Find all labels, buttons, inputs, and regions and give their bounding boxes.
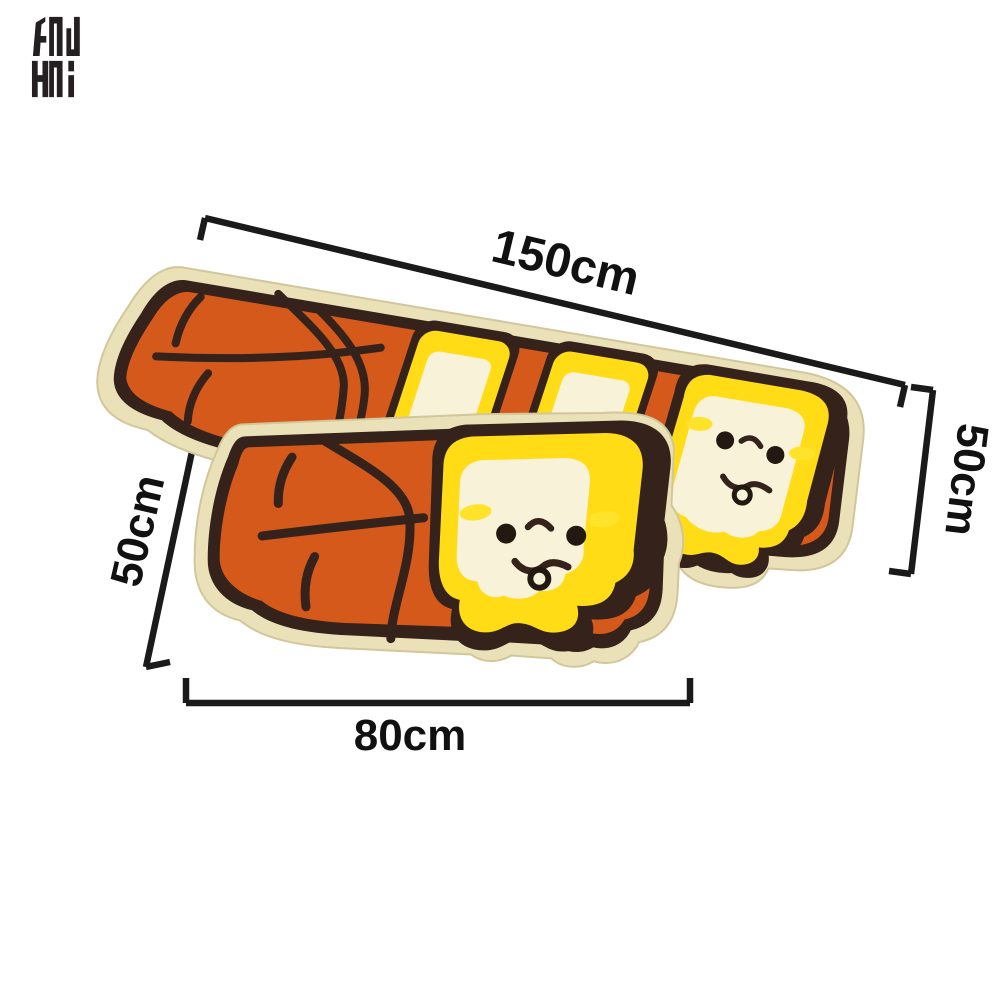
small-mat bbox=[191, 409, 686, 677]
face-tongue bbox=[733, 486, 751, 504]
dimension-label-80cm: 80cm bbox=[354, 711, 467, 760]
scene: 150cm 50cm 50cm 80cm bbox=[0, 0, 1000, 1000]
dimension-right-50cm bbox=[889, 387, 933, 574]
dimension-label-right-50cm: 50cm bbox=[935, 421, 997, 539]
dimension-80cm bbox=[186, 678, 690, 703]
dimension-line-80cm bbox=[186, 678, 690, 703]
dimension-line-right-50cm bbox=[889, 387, 933, 574]
face-tongue bbox=[530, 569, 548, 587]
product-dimension-image: 150cm 50cm 50cm 80cm bbox=[0, 0, 1000, 1000]
